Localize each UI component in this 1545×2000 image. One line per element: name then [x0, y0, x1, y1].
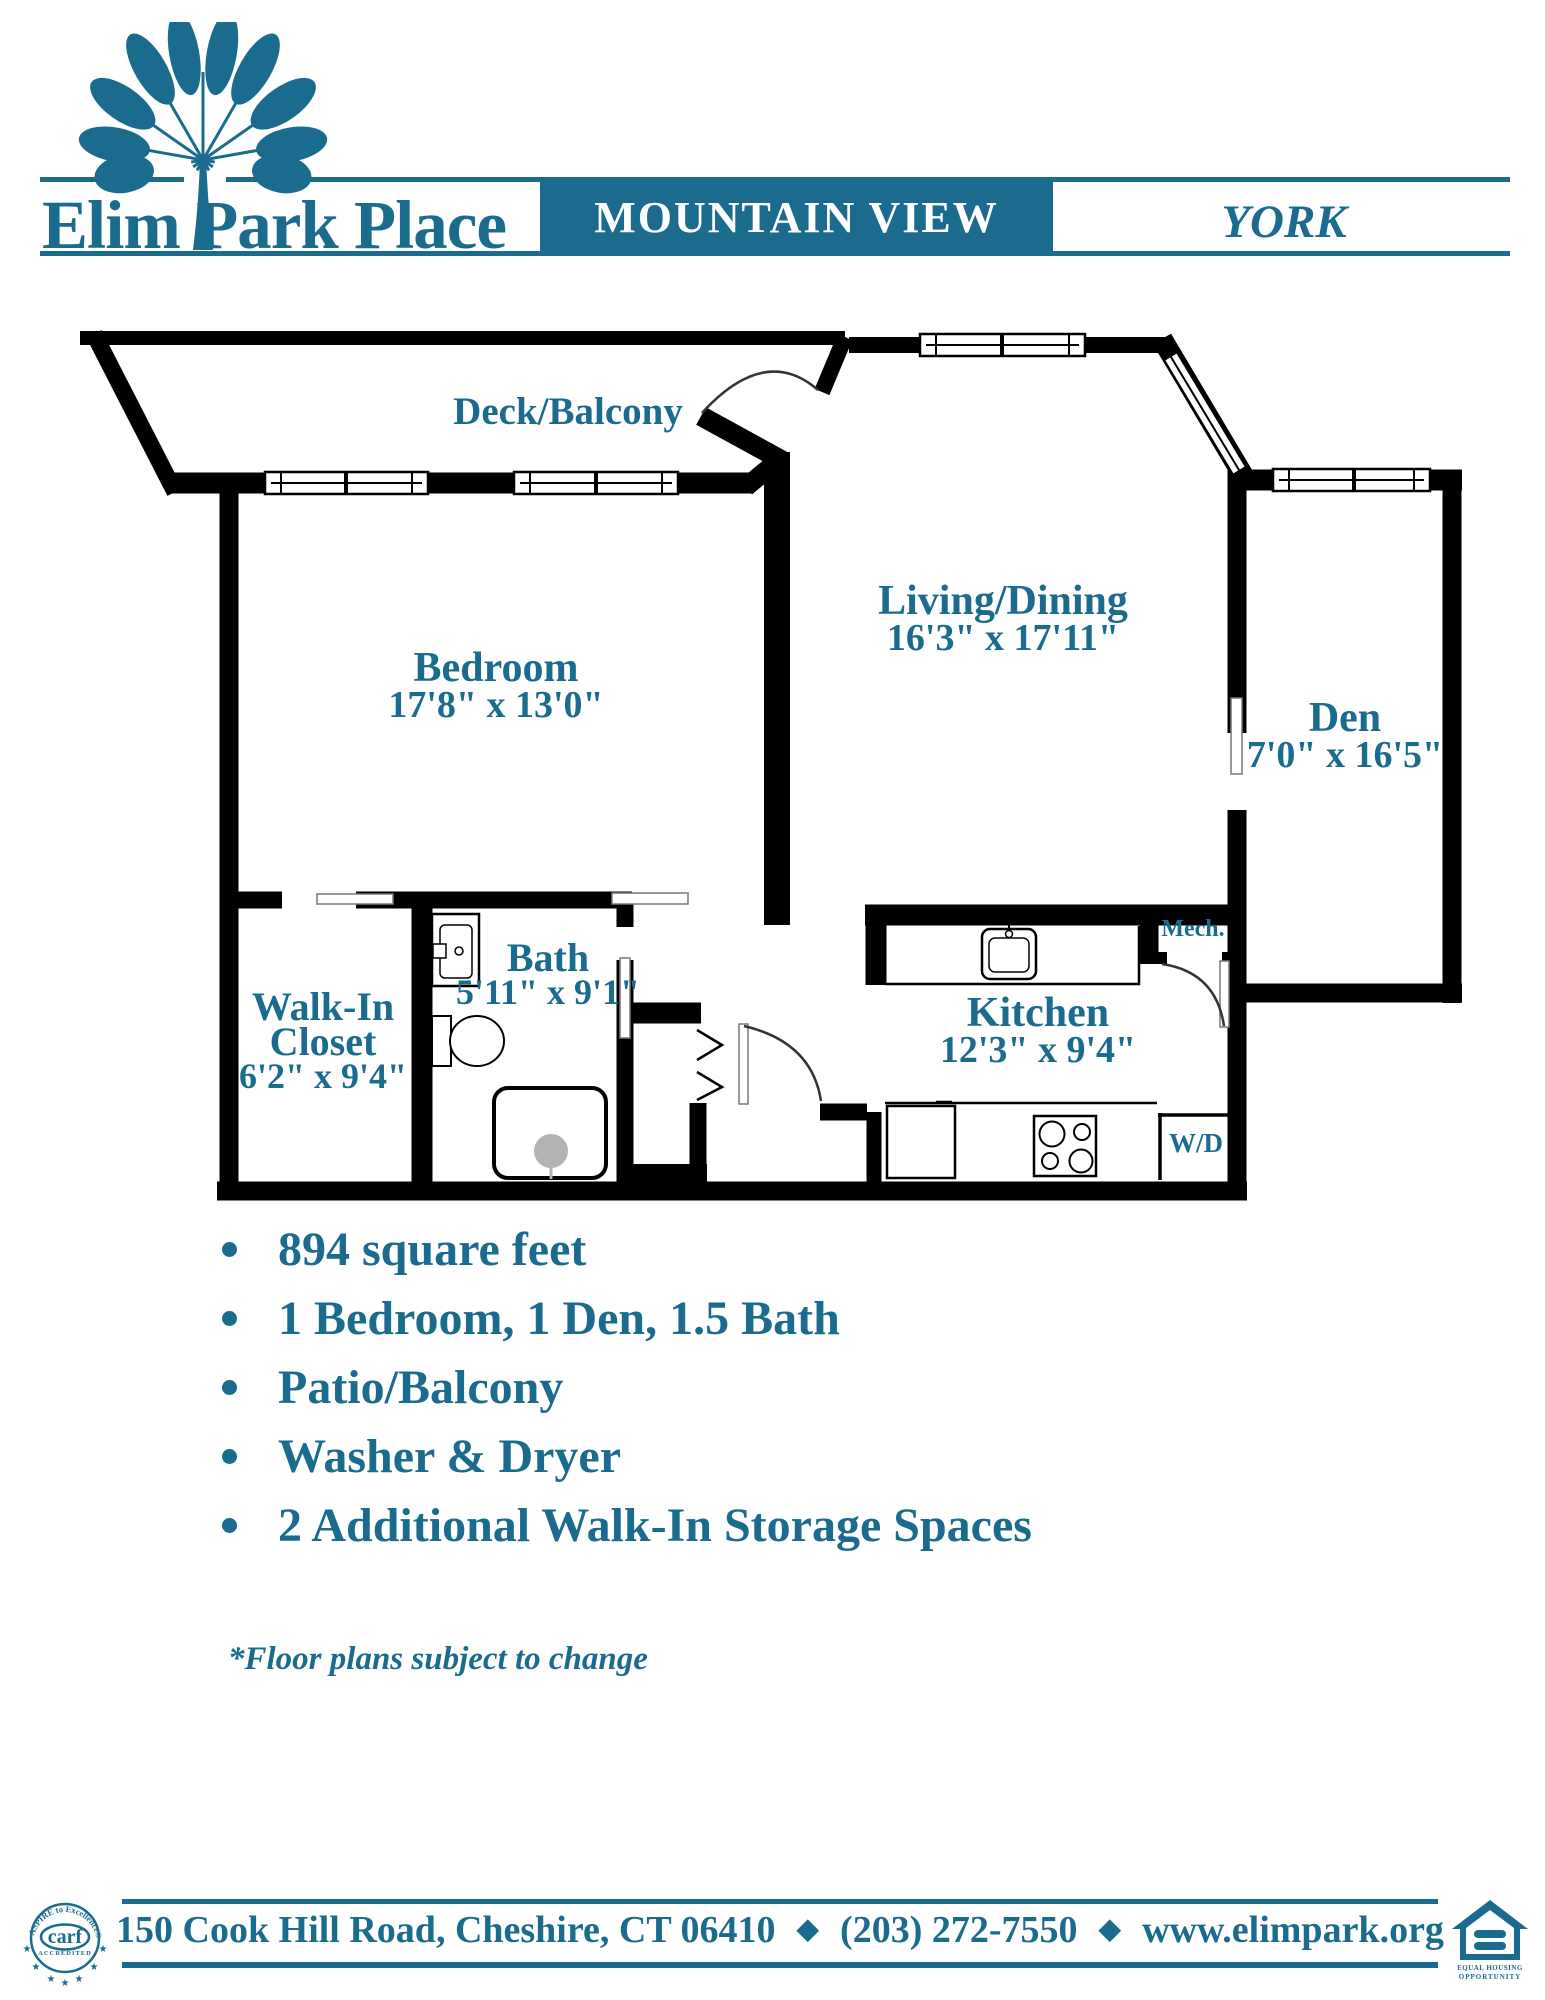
deck-balcony-label: Deck/Balcony	[453, 393, 683, 430]
den-door	[1231, 698, 1242, 774]
bullet-icon	[222, 1311, 237, 1326]
toilet-icon	[432, 1016, 504, 1066]
diagonal-window	[1171, 357, 1239, 470]
living-window	[920, 334, 1085, 356]
svg-text:★: ★	[99, 1944, 108, 1955]
svg-text:★: ★	[90, 1962, 99, 1973]
kitchen-sink-icon	[982, 923, 1036, 979]
den-window	[1273, 469, 1430, 491]
carf-accreditation-badge-icon: ASPIRE to Excellence® carf ACCREDITED ★★…	[20, 1888, 110, 1990]
svg-text:★: ★	[61, 1978, 70, 1989]
closet-sliding-door	[317, 894, 393, 904]
svg-text:ACCREDITED: ACCREDITED	[38, 1950, 92, 1957]
footer-rule-bottom	[122, 1962, 1438, 1968]
diamond-separator-icon: ◆	[785, 1914, 831, 1945]
living-dining-label: Living/Dining 16'3" x 17'11"	[878, 583, 1128, 657]
svg-text:★: ★	[23, 1944, 32, 1955]
mech-label: Mech.	[1161, 917, 1224, 941]
bedroom-label: Bedroom 17'8" x 13'0"	[388, 650, 603, 724]
bullet-icon	[222, 1518, 237, 1533]
floor-plan-drawing	[0, 0, 1545, 2000]
svg-text:★: ★	[32, 1962, 41, 1973]
bath-label: Bath 5'11" x 9'1"	[456, 941, 640, 1009]
list-item: 1 Bedroom, 1 Den, 1.5 Bath	[222, 1291, 1032, 1360]
dishwasher-icon	[887, 1102, 955, 1178]
feature-list: 894 square feet 1 Bedroom, 1 Den, 1.5 Ba…	[222, 1222, 1032, 1567]
footer-address: 150 Cook Hill Road, Cheshire, CT 06410	[116, 1909, 775, 1951]
list-item: Washer & Dryer	[222, 1429, 1032, 1498]
svg-text:OPPORTUNITY: OPPORTUNITY	[1459, 1973, 1521, 1981]
diamond-separator-icon: ◆	[1087, 1914, 1133, 1945]
list-item: 2 Additional Walk-In Storage Spaces	[222, 1498, 1032, 1567]
walk-in-closet-label: Walk-In Closet 6'2" x 9'4"	[239, 989, 407, 1094]
bullet-icon	[222, 1449, 237, 1464]
bullet-icon	[222, 1242, 237, 1257]
entry-door	[739, 1024, 821, 1104]
bedroom-window-1	[265, 472, 428, 494]
svg-text:★: ★	[47, 1974, 56, 1985]
mech-door	[1162, 961, 1229, 1027]
bedroom-sliding-door	[612, 893, 688, 904]
list-item: 894 square feet	[222, 1222, 1032, 1291]
storage-bifold-doors	[697, 1030, 722, 1100]
footer-website: www.elimpark.org	[1142, 1909, 1444, 1951]
den-label: Den 7'0" x 16'5"	[1247, 700, 1443, 774]
footer-rule-top	[122, 1899, 1438, 1904]
svg-text:carf: carf	[48, 1926, 83, 1948]
footer-contact-line: 150 Cook Hill Road, Cheshire, CT 06410 ◆…	[116, 1908, 1444, 1952]
bedroom-window-2	[514, 472, 678, 494]
svg-text:EQUAL HOUSING: EQUAL HOUSING	[1457, 1964, 1523, 1972]
svg-text:★: ★	[75, 1974, 84, 1985]
disclaimer-note: *Floor plans subject to change	[228, 1641, 648, 1678]
list-item: Patio/Balcony	[222, 1360, 1032, 1429]
kitchen-label: Kitchen 12'3" x 9'4"	[940, 995, 1136, 1069]
equal-housing-opportunity-icon: EQUAL HOUSING OPPORTUNITY	[1450, 1898, 1530, 1982]
footer-phone: (203) 272-7550	[840, 1909, 1077, 1951]
stove-icon	[1034, 1116, 1096, 1176]
bullet-icon	[222, 1380, 237, 1395]
shower-icon	[494, 1088, 606, 1179]
floor-plan-flyer: Elim Park Place MOUNTAIN VIEW YORK	[0, 0, 1545, 2000]
washer-dryer-label: W/D	[1169, 1130, 1223, 1157]
balcony-door	[702, 337, 845, 413]
